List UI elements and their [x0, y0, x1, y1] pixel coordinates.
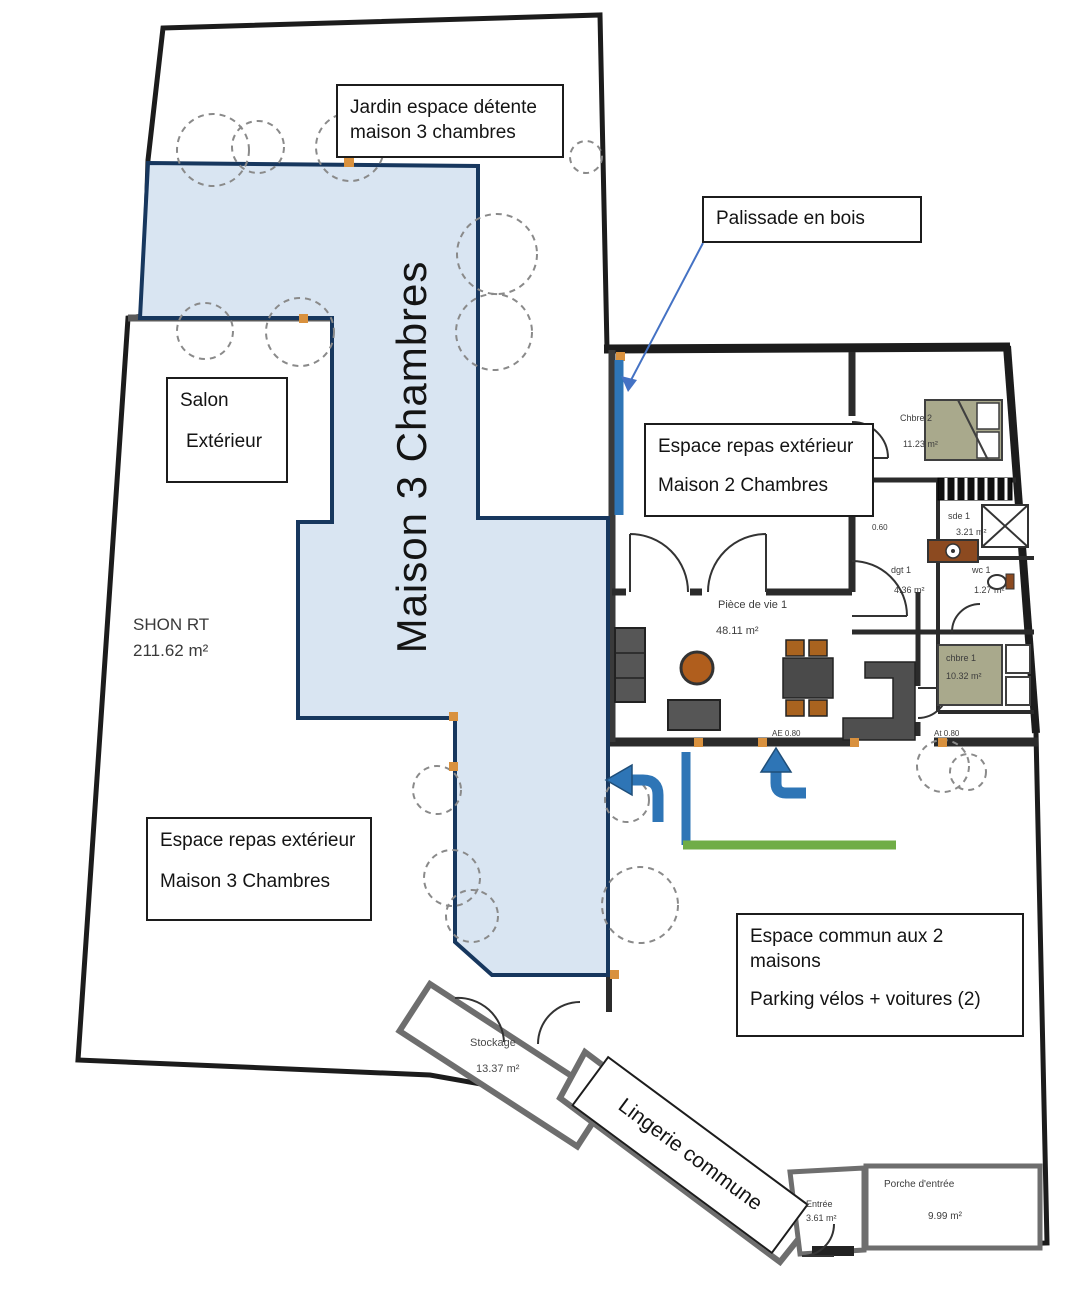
- chair: [786, 640, 804, 656]
- room-label-dgt1: dgt 1: [891, 566, 911, 575]
- room-area-stockage: 13.37 m²: [476, 1064, 519, 1075]
- room-label-chbre1: chbre 1: [946, 654, 976, 663]
- shon-label: SHON RT 211.62 m²: [133, 612, 209, 663]
- repas-m3-line2: Maison 3 Chambres: [160, 870, 358, 895]
- commun-line3: Parking vélos + voitures (2): [750, 988, 1010, 1013]
- repas-m3-line1: Espace repas extérieur: [160, 829, 358, 854]
- wall-mark-at080: At 0.80: [934, 730, 959, 738]
- room-label-sde1: sde 1: [948, 512, 970, 521]
- gap: [626, 586, 690, 598]
- room-area-porche: 9.99 m²: [928, 1212, 962, 1222]
- room-area-piece-de-vie1: 48.11 m²: [716, 626, 759, 637]
- label-box-commun: Espace commun aux 2 maisons Parking vélo…: [736, 913, 1024, 1037]
- threshold: [616, 352, 625, 361]
- chair: [786, 700, 804, 716]
- wardrobe-chbre1: [1006, 645, 1030, 673]
- wardrobe-hatched: [938, 478, 1012, 500]
- jardin-line1: Jardin espace détente: [350, 96, 550, 121]
- wardrobe-chbre1: [1006, 677, 1030, 705]
- chair: [809, 700, 827, 716]
- room-label-piece-de-vie1: Pièce de vie 1: [718, 600, 787, 611]
- room-label-wc1: wc 1: [972, 566, 991, 575]
- palissade-text: Palissade en bois: [716, 207, 865, 232]
- threshold: [938, 738, 947, 747]
- wall-mark-060: 0.60: [872, 524, 888, 532]
- commun-line2: maisons: [750, 950, 1010, 975]
- threshold: [344, 158, 354, 167]
- label-box-jardin: Jardin espace détente maison 3 chambres: [336, 84, 564, 158]
- shon-line1: SHON RT: [133, 612, 209, 638]
- shower-icon: [982, 505, 1028, 547]
- label-box-repas-m2: Espace repas extérieur Maison 2 Chambres: [644, 423, 874, 517]
- gap: [702, 586, 766, 598]
- label-box-salon: Salon Extérieur: [166, 377, 288, 483]
- room-area-dgt1: 4.36 m²: [894, 586, 925, 595]
- maison3-banner: Maison 3 Chambres: [388, 227, 452, 687]
- repas-m2-line1: Espace repas extérieur: [658, 435, 860, 460]
- threshold: [758, 738, 767, 747]
- jardin-line2: maison 3 chambres: [350, 121, 550, 146]
- sofa-large: [615, 628, 645, 702]
- sofa-small: [668, 700, 720, 730]
- repas-m2-line2: Maison 2 Chambres: [658, 474, 860, 499]
- threshold: [449, 712, 458, 721]
- chair: [809, 640, 827, 656]
- salon-line1: Salon: [180, 389, 274, 414]
- room-label-porche: Porche d'entrée: [884, 1180, 954, 1190]
- threshold: [850, 738, 859, 747]
- room-area-wc1: 1.27 m²: [974, 586, 1005, 595]
- wall: [604, 347, 1010, 349]
- room-label-chbre2: Chbre 2: [900, 414, 932, 423]
- threshold: [610, 970, 619, 979]
- threshold: [694, 738, 703, 747]
- room-label-stockage: Stockage: [470, 1038, 516, 1049]
- room-area-chbre1: 10.32 m²: [946, 672, 982, 681]
- room-area-entree: 3.61 m²: [806, 1214, 837, 1223]
- wall-mark-ae080: AE 0.80: [772, 730, 800, 738]
- threshold: [299, 314, 308, 323]
- commun-line1: Espace commun aux 2: [750, 925, 1010, 950]
- label-box-repas-m3: Espace repas extérieur Maison 3 Chambres: [146, 817, 372, 921]
- label-box-palissade: Palissade en bois: [702, 196, 922, 243]
- room-area-sde1: 3.21 m²: [956, 528, 987, 537]
- room-label-entree: Entrée: [806, 1200, 833, 1209]
- site-plan: Jardin espace détente maison 3 chambres …: [0, 0, 1080, 1293]
- threshold: [449, 762, 458, 771]
- sink-drain: [951, 549, 955, 553]
- coffee-table: [681, 652, 713, 684]
- room-area-chbre2: 11.23 m²: [903, 440, 938, 449]
- dining-table: [783, 658, 833, 698]
- bed-pillows: [977, 403, 999, 429]
- shon-line2: 211.62 m²: [133, 638, 209, 664]
- salon-line2: Extérieur: [186, 430, 274, 455]
- toilet-tank: [1006, 574, 1014, 589]
